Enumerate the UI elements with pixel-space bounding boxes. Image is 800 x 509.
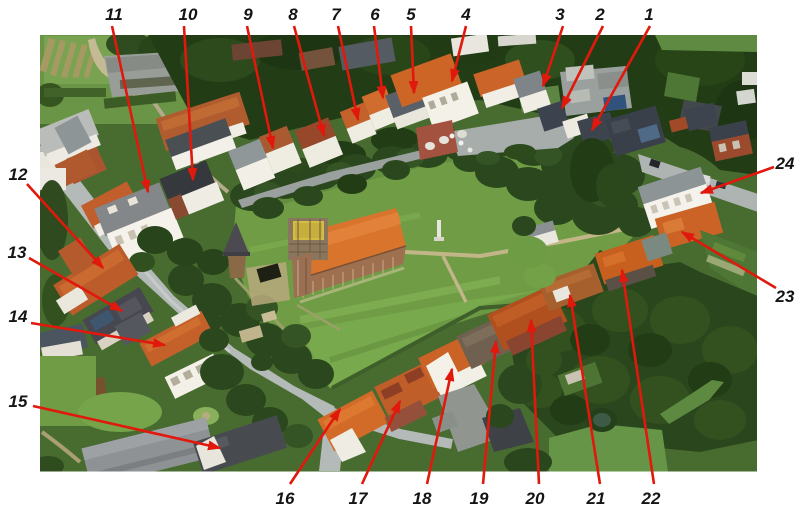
svg-text:20: 20 — [525, 489, 545, 508]
svg-text:16: 16 — [276, 489, 295, 508]
svg-text:8: 8 — [288, 5, 298, 24]
svg-text:1: 1 — [644, 5, 653, 24]
svg-text:11: 11 — [105, 5, 123, 24]
svg-text:12: 12 — [9, 165, 28, 184]
svg-text:19: 19 — [470, 489, 489, 508]
svg-text:4: 4 — [460, 5, 471, 24]
svg-text:5: 5 — [406, 5, 416, 24]
svg-text:13: 13 — [8, 243, 27, 262]
svg-text:10: 10 — [179, 5, 198, 24]
svg-text:24: 24 — [775, 154, 795, 173]
svg-text:23: 23 — [775, 287, 795, 306]
svg-text:7: 7 — [331, 5, 342, 24]
svg-text:15: 15 — [9, 392, 28, 411]
svg-text:6: 6 — [370, 5, 380, 24]
svg-text:2: 2 — [594, 5, 605, 24]
svg-text:3: 3 — [555, 5, 565, 24]
svg-text:14: 14 — [9, 307, 28, 326]
svg-text:9: 9 — [243, 5, 253, 24]
svg-text:17: 17 — [349, 489, 369, 508]
svg-text:21: 21 — [586, 489, 606, 508]
svg-text:18: 18 — [413, 489, 432, 508]
svg-text:22: 22 — [641, 489, 661, 508]
